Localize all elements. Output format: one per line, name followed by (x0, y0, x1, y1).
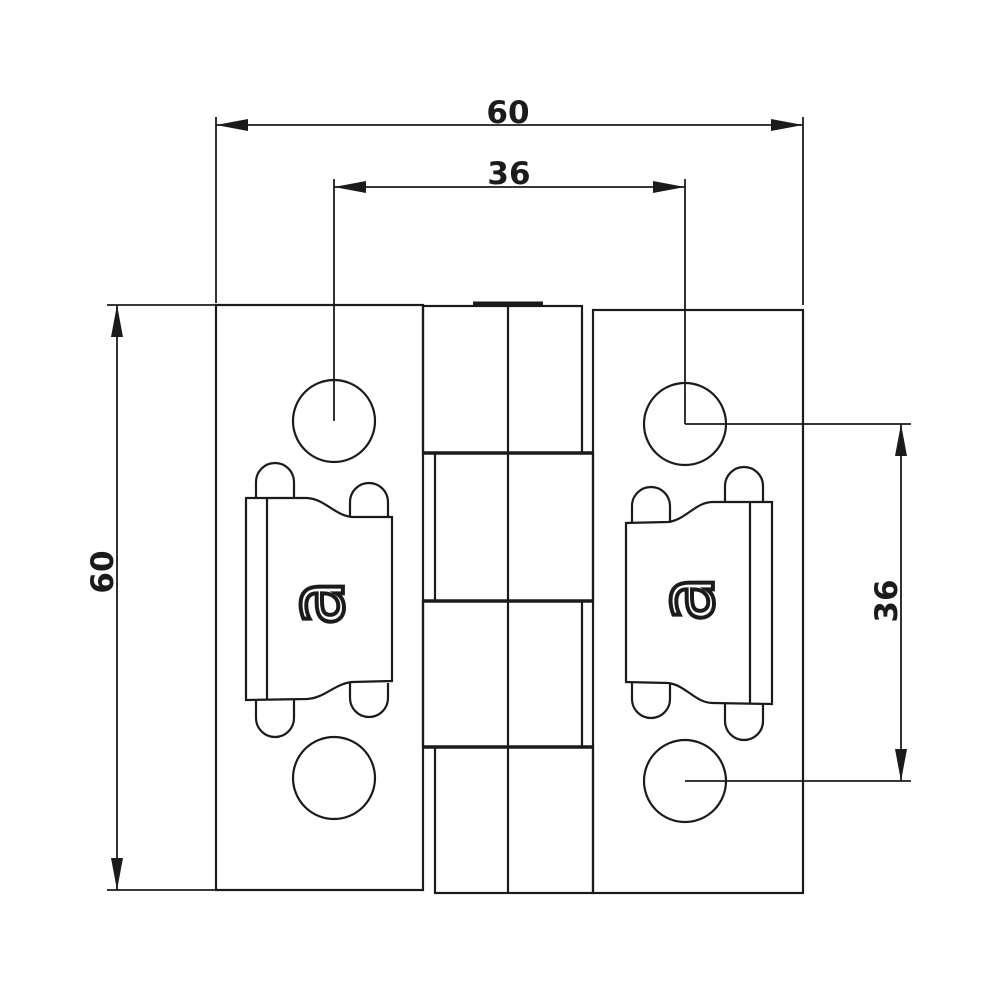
drawing-canvas: a a 60 36 (0, 0, 1000, 1000)
dimension-value-hole-spacing-vertical: 36 (869, 579, 905, 622)
right-insert-tab-bottom-outer (725, 704, 763, 740)
screw-hole-bottom-left (293, 737, 375, 819)
left-insert-logo-letter: a (272, 580, 361, 627)
left-insert-tab-bottom-inner (350, 683, 388, 717)
right-insert-tab-bottom-inner (632, 683, 670, 718)
left-damper-insert: a (246, 463, 392, 737)
right-damper-insert: a (626, 467, 772, 740)
barrel-knuckle-1 (423, 306, 582, 453)
arrow-right-icon (653, 181, 685, 193)
arrow-left-icon (334, 181, 366, 193)
right-insert-tab-top-inner (632, 487, 670, 523)
barrel-knuckle-3 (423, 601, 582, 747)
arrow-down-icon (895, 749, 907, 781)
right-insert-tab-top-outer (725, 467, 763, 502)
left-insert-tab-bottom-outer (256, 700, 294, 737)
dimension-overall-height: 60 (85, 305, 216, 890)
barrel-knuckle-4 (435, 747, 593, 893)
hinge-technical-drawing: a a 60 36 (0, 0, 1000, 1000)
hinge-part: a a (216, 304, 803, 893)
arrow-left-icon (216, 119, 248, 131)
arrow-down-icon (111, 858, 123, 890)
hinge-barrel (423, 304, 593, 893)
dimension-hole-spacing-horizontal: 36 (334, 156, 685, 424)
left-insert-tab-top-inner (350, 483, 388, 517)
right-insert-logo-letter: a (642, 576, 731, 623)
barrel-knuckle-2 (435, 453, 593, 601)
dimension-overall-width: 60 (216, 95, 803, 305)
dimension-value-hole-spacing-horizontal: 36 (487, 156, 530, 192)
arrow-right-icon (771, 119, 803, 131)
arrow-up-icon (111, 305, 123, 337)
dimension-value-overall-width: 60 (486, 95, 529, 131)
arrow-up-icon (895, 424, 907, 456)
left-insert-tab-top-outer (256, 463, 294, 498)
dimension-value-overall-height: 60 (85, 550, 121, 593)
